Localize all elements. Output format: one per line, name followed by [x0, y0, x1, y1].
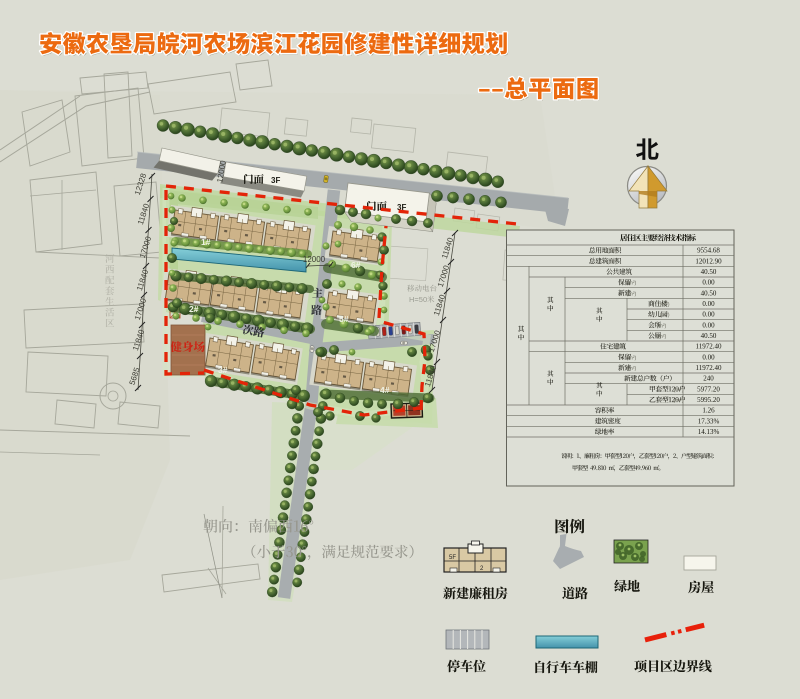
svg-text:240: 240: [703, 375, 714, 383]
svg-text:(m²): (m²): [674, 387, 684, 393]
svg-text:(m²): (m²): [656, 334, 666, 340]
svg-text:(m²): (m²): [626, 355, 636, 361]
svg-text:14.13%: 14.13%: [698, 428, 720, 436]
svg-text:(m²): (m²): [626, 366, 636, 372]
svg-text:(m²): (m²): [615, 345, 625, 351]
svg-text:4#: 4#: [380, 385, 390, 395]
svg-text:9554.68: 9554.68: [697, 247, 720, 255]
svg-text:0.00: 0.00: [702, 311, 715, 319]
svg-text:6#: 6#: [351, 260, 361, 270]
svg-text:40.50: 40.50: [701, 289, 717, 297]
svg-text:11972.40: 11972.40: [696, 364, 722, 372]
svg-text:17.33%: 17.33%: [698, 417, 720, 425]
svg-text:12012.90: 12012.90: [695, 257, 722, 265]
svg-text:5977.20: 5977.20: [697, 385, 720, 393]
svg-text:12000: 12000: [303, 255, 326, 264]
svg-text:3#: 3#: [218, 365, 228, 375]
svg-text:(m²): (m²): [607, 259, 617, 265]
svg-text:0.00: 0.00: [702, 300, 715, 308]
svg-text:1#: 1#: [201, 237, 211, 247]
svg-text:(m²): (m²): [656, 323, 666, 329]
svg-text:(m²): (m²): [660, 302, 670, 308]
svg-text:(m²): (m²): [674, 398, 684, 404]
svg-text:(m²): (m²): [607, 249, 617, 255]
svg-text:0.00: 0.00: [702, 353, 715, 361]
svg-text:3F: 3F: [271, 176, 280, 185]
svg-text:40.50: 40.50: [701, 268, 717, 276]
svg-text:11972.40: 11972.40: [696, 343, 722, 351]
svg-text:40.50: 40.50: [701, 332, 717, 340]
svg-text:(m²): (m²): [660, 313, 670, 319]
svg-text:(m²): (m²): [626, 281, 636, 287]
svg-text:5995.20: 5995.20: [697, 396, 720, 404]
svg-text:1.26: 1.26: [702, 407, 715, 415]
svg-text:2#: 2#: [189, 304, 199, 314]
svg-text:0.00: 0.00: [702, 321, 715, 329]
svg-text:5F: 5F: [449, 555, 456, 561]
svg-text:H=50: H=50: [409, 295, 427, 304]
svg-text:(m²): (m²): [626, 291, 636, 297]
svg-text:5#: 5#: [339, 314, 349, 324]
svg-text:0.00: 0.00: [702, 279, 715, 287]
